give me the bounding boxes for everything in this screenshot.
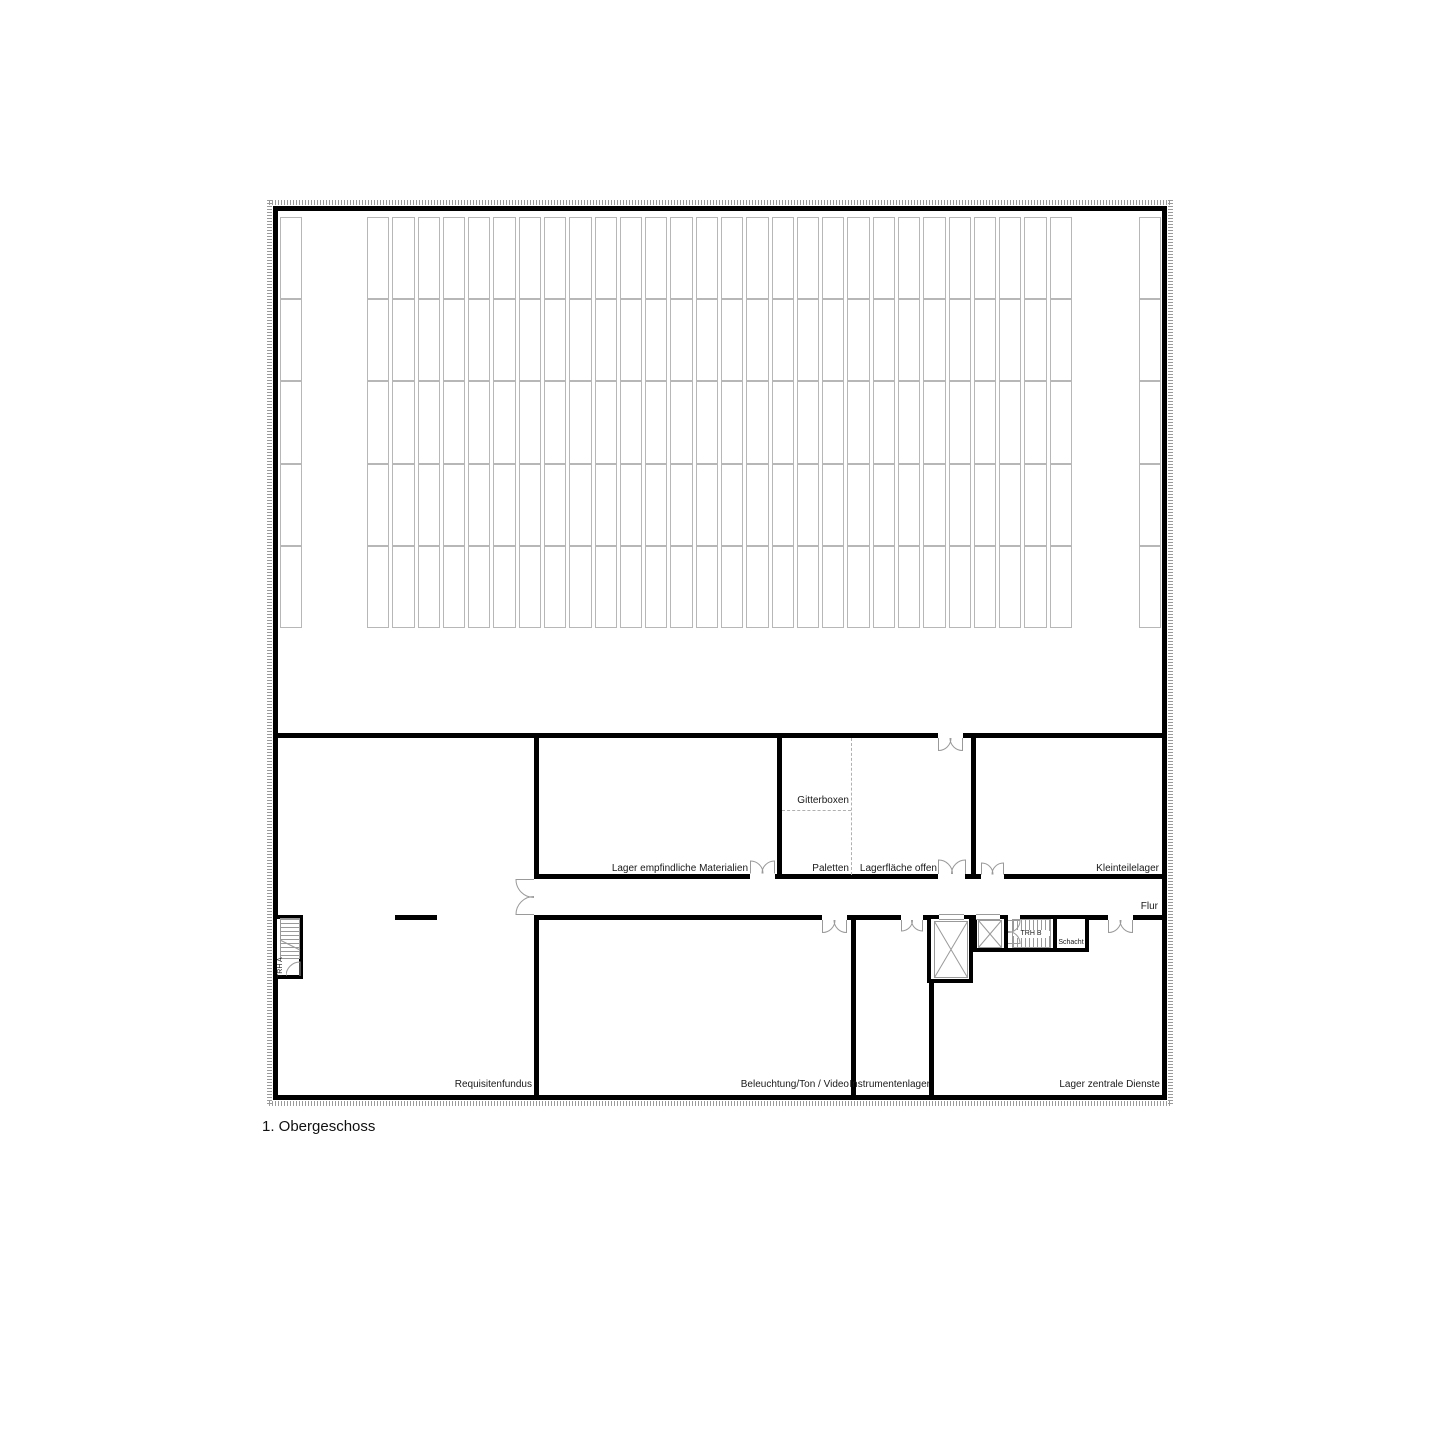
rack-cell bbox=[418, 381, 440, 463]
rack-cell bbox=[544, 381, 566, 463]
rack-cell bbox=[1050, 217, 1072, 299]
rack-cell bbox=[595, 546, 617, 628]
rack-cell bbox=[949, 217, 971, 299]
rack-cell bbox=[392, 381, 414, 463]
rack-cell bbox=[974, 381, 996, 463]
wall-stub-requisitenfundus bbox=[395, 915, 437, 920]
rack-cell bbox=[898, 546, 920, 628]
rack-cell bbox=[923, 299, 945, 381]
rack-cell bbox=[999, 381, 1021, 463]
rack-cell bbox=[367, 464, 389, 546]
rack-cell bbox=[620, 546, 642, 628]
elevator-car-large-x bbox=[933, 920, 969, 984]
rack-cell bbox=[898, 464, 920, 546]
rack-cell bbox=[1050, 381, 1072, 463]
room-label-lager-empfindliche-materialien: Lager empfindliche Materialien bbox=[612, 863, 748, 874]
rack-cell bbox=[1024, 299, 1046, 381]
rack-cell bbox=[797, 464, 819, 546]
door-hall-to-lagerflaeche bbox=[938, 738, 963, 752]
rack-cell bbox=[847, 546, 869, 628]
rack-cell bbox=[847, 464, 869, 546]
rack-cell bbox=[280, 546, 302, 628]
rack-cell bbox=[280, 217, 302, 299]
rack-cell bbox=[746, 299, 768, 381]
rack-cell bbox=[418, 546, 440, 628]
door-corridor-to-trh-b bbox=[1008, 920, 1021, 944]
rack-cell bbox=[822, 299, 844, 381]
rack-cell bbox=[772, 381, 794, 463]
door-corridor-to-requisitenfundus bbox=[515, 879, 534, 915]
rack-cell bbox=[873, 217, 895, 299]
room-label-requisitenfundus: Requisitenfundus bbox=[455, 1079, 532, 1090]
rack-cell bbox=[746, 464, 768, 546]
rack-cell bbox=[1139, 217, 1161, 299]
rack-cell bbox=[392, 546, 414, 628]
rack-cell bbox=[696, 299, 718, 381]
wall-instrumenten-west bbox=[851, 920, 856, 1095]
rack-cell bbox=[999, 546, 1021, 628]
stair-trh-a-door bbox=[286, 961, 302, 983]
rack-cell bbox=[797, 546, 819, 628]
dashed-partition-horizontal bbox=[782, 810, 851, 811]
rack-cell bbox=[645, 299, 667, 381]
door-corridor-to-instrumenten bbox=[901, 920, 923, 932]
room-label-schacht: Schacht bbox=[1055, 939, 1087, 947]
rack-cell bbox=[696, 217, 718, 299]
rack-cell bbox=[569, 546, 591, 628]
rack-cell bbox=[418, 464, 440, 546]
rack-cell bbox=[974, 464, 996, 546]
rack-cell bbox=[645, 464, 667, 546]
rack-cell bbox=[443, 381, 465, 463]
rack-cell bbox=[468, 464, 490, 546]
rack-cell bbox=[721, 381, 743, 463]
rack-cell bbox=[746, 217, 768, 299]
rack-cell bbox=[721, 546, 743, 628]
rack-cell bbox=[544, 299, 566, 381]
rack-cell bbox=[493, 464, 515, 546]
rack-cell bbox=[1024, 546, 1046, 628]
rack-cell bbox=[974, 217, 996, 299]
wall-zentrale-dienste-west bbox=[929, 980, 934, 1095]
rack-cell bbox=[443, 464, 465, 546]
rack-cell bbox=[999, 299, 1021, 381]
rack-cell bbox=[392, 217, 414, 299]
rack-cell bbox=[595, 464, 617, 546]
rack-cell bbox=[544, 546, 566, 628]
rack-cell bbox=[620, 299, 642, 381]
room-label-lager-zentrale-dienste: Lager zentrale Dienste bbox=[1059, 1079, 1160, 1090]
rack-cell bbox=[367, 299, 389, 381]
rack-cell bbox=[418, 299, 440, 381]
rack-cell bbox=[620, 464, 642, 546]
rack-cell bbox=[949, 464, 971, 546]
wall-hatch-left bbox=[267, 200, 272, 1106]
wall-hatch-right bbox=[1168, 200, 1173, 1106]
rack-cell bbox=[1139, 546, 1161, 628]
rack-cell bbox=[645, 381, 667, 463]
rack-cell bbox=[544, 464, 566, 546]
door-corridor-to-empfindliche bbox=[750, 860, 775, 874]
rack-cell bbox=[392, 464, 414, 546]
rack-cell bbox=[923, 464, 945, 546]
rack-cell bbox=[367, 546, 389, 628]
rack-cell bbox=[670, 217, 692, 299]
rack-cell bbox=[974, 299, 996, 381]
elevator-car-small-x bbox=[977, 919, 1004, 954]
wall-corridor-bottom-4 bbox=[1089, 915, 1108, 920]
rack-cell bbox=[721, 299, 743, 381]
rack-cell bbox=[468, 546, 490, 628]
rack-cell bbox=[949, 546, 971, 628]
rack-cell bbox=[1139, 299, 1161, 381]
room-label-beleuchtung-ton-video: Beleuchtung/Ton / Video bbox=[741, 1079, 849, 1090]
wall-kleinteile-west bbox=[971, 738, 976, 874]
rack-cell bbox=[847, 381, 869, 463]
rack-cell bbox=[696, 464, 718, 546]
rack-cell bbox=[873, 546, 895, 628]
rack-cell bbox=[898, 217, 920, 299]
rack-cell bbox=[443, 299, 465, 381]
rack-cell bbox=[999, 464, 1021, 546]
rack-cell bbox=[898, 381, 920, 463]
elevator-sliding-door-large bbox=[939, 914, 964, 920]
rack-cell bbox=[1050, 464, 1072, 546]
door-corridor-to-beleuchtung bbox=[822, 920, 847, 934]
door-corridor-to-zentrale-dienste bbox=[1108, 920, 1133, 934]
rack-cell bbox=[1024, 464, 1046, 546]
floor-caption: 1. Obergeschoss bbox=[262, 1118, 375, 1135]
floor-plan-page: TRH A TRH B Schacht Lager empfindliche M bbox=[0, 0, 1440, 1440]
rack-cell bbox=[493, 381, 515, 463]
rack-cell bbox=[493, 299, 515, 381]
rack-cell bbox=[873, 381, 895, 463]
door-corridor-to-lagerflaeche bbox=[938, 859, 966, 874]
rack-cell bbox=[443, 217, 465, 299]
rack-cell bbox=[1139, 381, 1161, 463]
rack-cell bbox=[569, 381, 591, 463]
rack-cell bbox=[999, 217, 1021, 299]
rack-cell bbox=[645, 217, 667, 299]
rack-cell bbox=[847, 217, 869, 299]
rack-cell bbox=[797, 217, 819, 299]
room-label-lagerflaeche-offen: Lagerfläche offen bbox=[860, 863, 937, 874]
room-label-paletten: Paletten bbox=[812, 863, 849, 874]
rack-cell bbox=[670, 464, 692, 546]
dashed-partition-vertical bbox=[851, 738, 852, 875]
rack-cell bbox=[519, 299, 541, 381]
rack-cell bbox=[280, 464, 302, 546]
rack-cell bbox=[873, 464, 895, 546]
room-label-gitterboxen: Gitterboxen bbox=[797, 795, 849, 806]
wall-corridor-top-2 bbox=[775, 874, 938, 879]
rack-cell bbox=[974, 546, 996, 628]
rack-cell bbox=[443, 546, 465, 628]
rack-cell bbox=[595, 217, 617, 299]
rack-cell bbox=[822, 217, 844, 299]
rack-cell bbox=[645, 546, 667, 628]
rack-cell bbox=[1024, 217, 1046, 299]
rack-cell bbox=[493, 217, 515, 299]
rack-cell bbox=[519, 464, 541, 546]
rack-cell bbox=[1024, 381, 1046, 463]
rack-cell bbox=[392, 299, 414, 381]
rack-cell bbox=[519, 381, 541, 463]
rack-cell bbox=[670, 381, 692, 463]
rack-cell bbox=[847, 299, 869, 381]
wall-corridor-bottom-1 bbox=[534, 915, 822, 920]
rack-cell bbox=[569, 299, 591, 381]
rack-cell bbox=[923, 381, 945, 463]
rack-cell bbox=[873, 299, 895, 381]
wall-beleuchtung-west bbox=[534, 920, 539, 1095]
rack-cell bbox=[898, 299, 920, 381]
wall-empfindliche-west bbox=[534, 738, 539, 874]
rack-cell bbox=[1050, 546, 1072, 628]
rack-cell bbox=[468, 217, 490, 299]
rack-cell bbox=[746, 546, 768, 628]
rack-cell bbox=[1050, 299, 1072, 381]
rack-cell bbox=[822, 546, 844, 628]
rack-grid-main bbox=[367, 217, 1072, 628]
wall-trh-b-bottom bbox=[1008, 948, 1057, 952]
rack-cell bbox=[569, 464, 591, 546]
rack-cell bbox=[595, 381, 617, 463]
rack-cell bbox=[544, 217, 566, 299]
wall-hatch-top bbox=[269, 200, 1171, 205]
rack-cell bbox=[595, 299, 617, 381]
wall-hall-divider-east bbox=[963, 733, 1162, 738]
room-label-flur: Flur bbox=[1141, 901, 1158, 912]
rack-cell bbox=[468, 299, 490, 381]
rack-cell bbox=[746, 381, 768, 463]
wall-corridor-top-1 bbox=[534, 874, 750, 879]
rack-cell bbox=[949, 381, 971, 463]
rack-cell bbox=[797, 299, 819, 381]
rack-cell bbox=[468, 381, 490, 463]
rack-cell bbox=[367, 381, 389, 463]
rack-cell bbox=[418, 217, 440, 299]
rack-cell bbox=[1139, 464, 1161, 546]
wall-hall-divider-west bbox=[278, 733, 938, 738]
wall-corridor-top-3 bbox=[965, 874, 981, 879]
room-label-instrumentenlager: Instrumentenlager bbox=[849, 1079, 930, 1090]
rack-cell bbox=[772, 464, 794, 546]
rack-column-right bbox=[1139, 217, 1161, 628]
rack-cell bbox=[797, 381, 819, 463]
rack-cell bbox=[696, 546, 718, 628]
rack-cell bbox=[569, 217, 591, 299]
rack-cell bbox=[670, 299, 692, 381]
rack-cell bbox=[721, 217, 743, 299]
rack-cell bbox=[772, 299, 794, 381]
rack-cell bbox=[280, 299, 302, 381]
rack-cell bbox=[519, 217, 541, 299]
wall-corridor-bottom-5 bbox=[1133, 915, 1162, 920]
rack-cell bbox=[519, 546, 541, 628]
rack-cell bbox=[772, 546, 794, 628]
wall-corridor-top-4 bbox=[1004, 874, 1162, 879]
rack-cell bbox=[367, 217, 389, 299]
rack-cell bbox=[822, 464, 844, 546]
door-corridor-to-kleinteile bbox=[981, 862, 1004, 875]
rack-cell bbox=[949, 299, 971, 381]
elevator-sliding-door-small bbox=[976, 914, 1000, 920]
rack-cell bbox=[721, 464, 743, 546]
room-label-trh-a: TRH A bbox=[277, 950, 286, 978]
rack-cell bbox=[772, 217, 794, 299]
wall-paletten-west bbox=[777, 738, 782, 874]
wall-hatch-bottom bbox=[269, 1101, 1171, 1106]
rack-cell bbox=[670, 546, 692, 628]
rack-column-left bbox=[280, 217, 302, 628]
rack-cell bbox=[493, 546, 515, 628]
rack-cell bbox=[620, 381, 642, 463]
rack-cell bbox=[280, 381, 302, 463]
rack-cell bbox=[696, 381, 718, 463]
rack-cell bbox=[822, 381, 844, 463]
rack-cell bbox=[923, 217, 945, 299]
rack-cell bbox=[620, 217, 642, 299]
room-label-kleinteilelager: Kleinteilelager bbox=[1096, 863, 1159, 874]
rack-cell bbox=[923, 546, 945, 628]
